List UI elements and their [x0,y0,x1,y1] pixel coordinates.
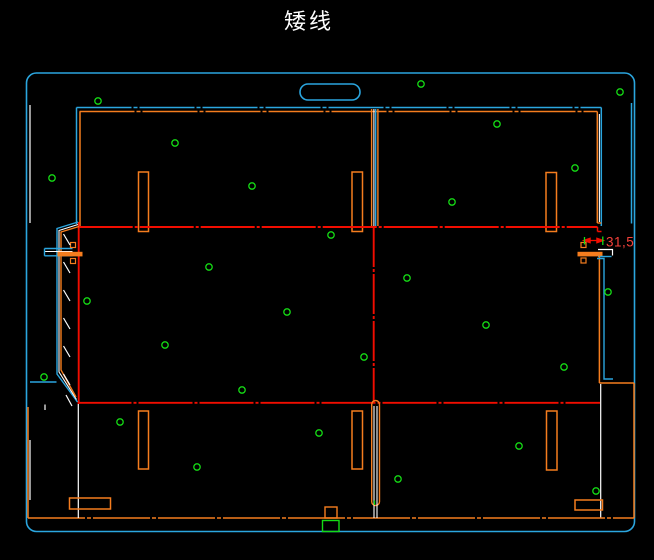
dim-label: 31,5 [606,235,634,250]
right-glue-bar [578,252,602,256]
cad-viewport: 31,5矮线 [0,0,654,560]
title-text: 矮线 [284,9,334,34]
left-glue-bar [58,252,82,256]
cad-canvas[interactable]: 31,5矮线 [0,0,654,560]
